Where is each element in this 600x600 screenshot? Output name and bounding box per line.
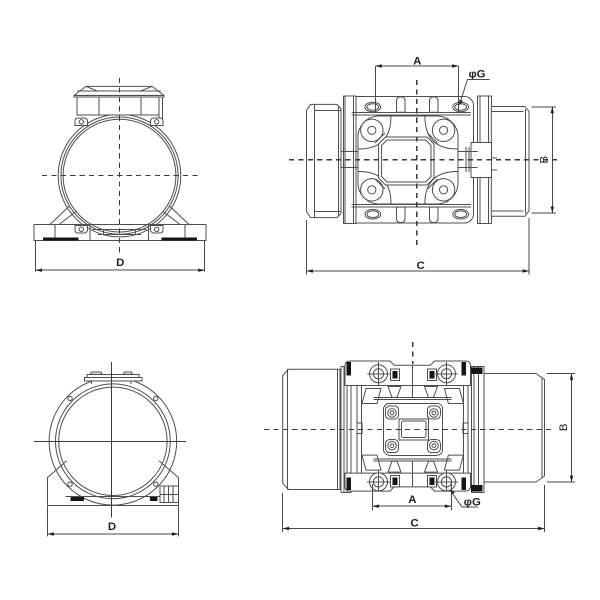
- svg-text:D: D: [108, 521, 116, 533]
- svg-text:φG: φG: [464, 496, 481, 508]
- svg-text:C: C: [410, 518, 418, 530]
- svg-text:A: A: [413, 56, 421, 68]
- svg-text:C: C: [416, 260, 424, 272]
- svg-text:D: D: [116, 257, 124, 269]
- svg-text:B: B: [558, 423, 570, 431]
- svg-text:A: A: [408, 494, 416, 506]
- svg-text:φG: φG: [469, 69, 486, 81]
